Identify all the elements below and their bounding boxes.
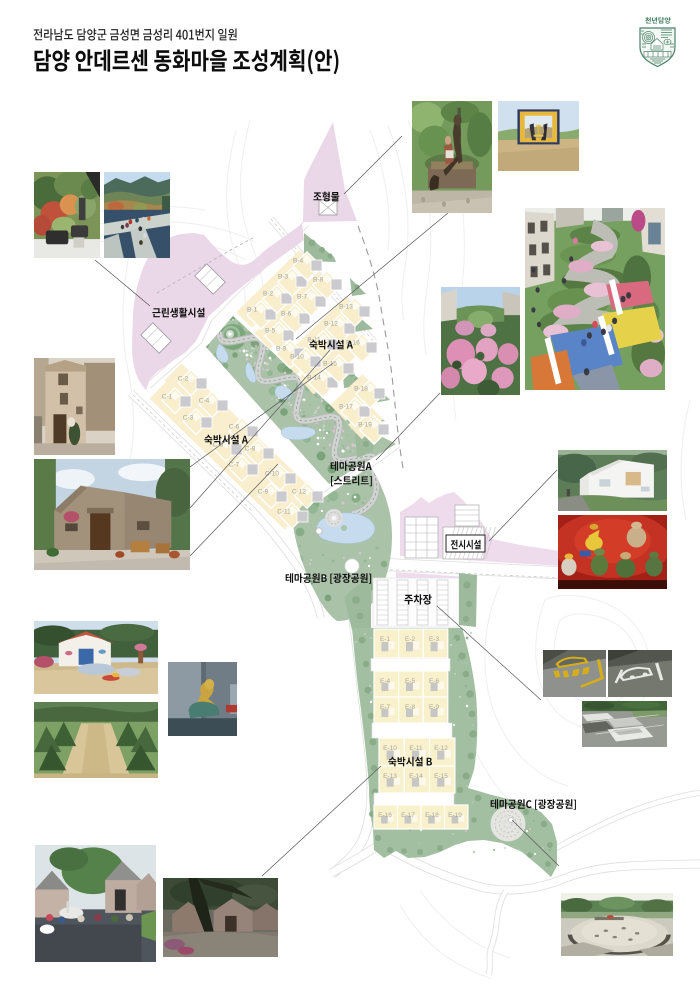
- svg-text:B-10: B-10: [290, 354, 304, 361]
- svg-text:C-2: C-2: [178, 376, 189, 383]
- svg-text:B-8: B-8: [313, 277, 324, 284]
- svg-text:E-1: E-1: [380, 636, 391, 643]
- svg-text:B-5: B-5: [265, 328, 276, 335]
- svg-text:E-18: E-18: [425, 812, 439, 819]
- svg-text:C-12: C-12: [292, 489, 306, 496]
- svg-text:B-9: B-9: [276, 346, 287, 353]
- svg-text:E-16: E-16: [378, 812, 392, 819]
- svg-text:E-15: E-15: [434, 773, 448, 780]
- svg-text:E-10: E-10: [383, 745, 397, 752]
- svg-text:B-12: B-12: [324, 321, 338, 328]
- svg-text:E-3: E-3: [429, 636, 440, 643]
- svg-text:B-18: B-18: [354, 386, 368, 393]
- svg-text:C-4: C-4: [199, 398, 210, 405]
- svg-text:E-4: E-4: [380, 678, 391, 685]
- svg-text:C-5: C-5: [213, 442, 224, 449]
- svg-text:B-13: B-13: [339, 304, 353, 311]
- svg-text:E-2: E-2: [405, 636, 416, 643]
- svg-text:E-8: E-8: [405, 704, 416, 711]
- svg-text:E-13: E-13: [383, 773, 397, 780]
- svg-text:E-9: E-9: [429, 704, 440, 711]
- svg-text:E-6: E-6: [429, 678, 440, 685]
- svg-text:B-15: B-15: [323, 361, 337, 368]
- svg-text:B-19: B-19: [358, 422, 372, 429]
- svg-text:C-6: C-6: [229, 424, 240, 431]
- svg-text:B-7: B-7: [297, 294, 308, 301]
- svg-text:B-17: B-17: [339, 404, 353, 411]
- svg-text:E-19: E-19: [448, 812, 462, 819]
- svg-text:E-12: E-12: [434, 745, 448, 752]
- svg-text:E-11: E-11: [409, 745, 423, 752]
- svg-text:C-3: C-3: [183, 415, 194, 422]
- svg-text:C-10: C-10: [265, 471, 279, 478]
- svg-text:B-3: B-3: [278, 274, 289, 281]
- svg-text:C-1: C-1: [162, 394, 173, 401]
- svg-text:E-14: E-14: [409, 773, 423, 780]
- svg-text:B-1: B-1: [247, 307, 258, 314]
- svg-text:E-5: E-5: [405, 678, 416, 685]
- svg-text:B-4: B-4: [293, 258, 304, 265]
- svg-text:B-6: B-6: [281, 311, 292, 318]
- svg-text:E-7: E-7: [380, 704, 391, 711]
- svg-text:C-8: C-8: [245, 446, 256, 453]
- svg-text:C-9: C-9: [258, 489, 269, 496]
- svg-text:B-2: B-2: [263, 291, 274, 298]
- svg-text:E-17: E-17: [401, 812, 415, 819]
- svg-text:C-11: C-11: [277, 509, 291, 516]
